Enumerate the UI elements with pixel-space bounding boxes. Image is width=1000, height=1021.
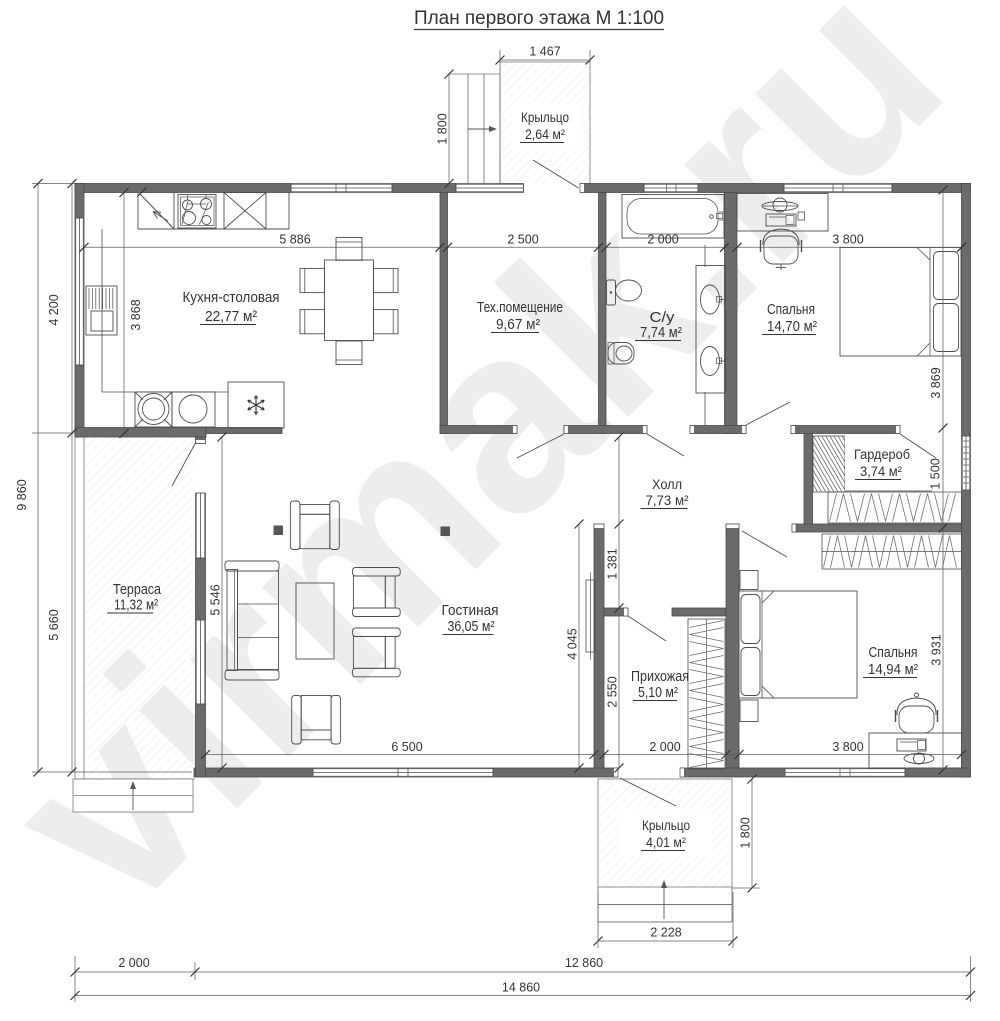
svg-text:Гардероб: Гардероб	[854, 447, 910, 462]
svg-text:Холл: Холл	[652, 476, 682, 492]
svg-text:4 045: 4 045	[566, 628, 580, 659]
svg-text:Спальня: Спальня	[869, 645, 918, 661]
svg-text:14 860: 14 860	[502, 981, 540, 995]
svg-text:4,01 м²: 4,01 м²	[646, 834, 686, 850]
svg-text:3,74 м²: 3,74 м²	[860, 464, 902, 479]
svg-text:14,94 м²: 14,94 м²	[868, 662, 918, 678]
svg-text:14,70 м²: 14,70 м²	[767, 319, 817, 335]
svg-text:Кухня-столовая: Кухня-столовая	[183, 289, 280, 306]
svg-text:2 000: 2 000	[647, 233, 678, 247]
svg-text:3 931: 3 931	[930, 634, 944, 665]
svg-text:7,73 м²: 7,73 м²	[646, 492, 689, 508]
svg-text:2 550: 2 550	[606, 676, 620, 707]
svg-text:1 467: 1 467	[529, 45, 560, 59]
svg-text:22,77 м²: 22,77 м²	[205, 308, 257, 325]
svg-text:5 546: 5 546	[209, 584, 223, 615]
svg-text:5 660: 5 660	[47, 609, 61, 640]
svg-text:Спальня: Спальня	[767, 302, 815, 318]
svg-text:Прихожая: Прихожая	[631, 669, 689, 685]
svg-text:2,64 м²: 2,64 м²	[525, 126, 565, 142]
svg-text:Гостиная: Гостиная	[442, 603, 499, 619]
svg-text:5,10 м²: 5,10 м²	[638, 685, 678, 701]
svg-text:1 800: 1 800	[739, 817, 753, 848]
svg-text:2 000: 2 000	[118, 956, 149, 970]
svg-text:12 860: 12 860	[565, 956, 603, 970]
svg-text:Крыльцо: Крыльцо	[642, 817, 690, 833]
svg-text:5 886: 5 886	[279, 233, 310, 247]
svg-text:3 869: 3 869	[929, 367, 943, 398]
svg-text:План первого этажа М 1:100: План первого этажа М 1:100	[414, 7, 664, 29]
svg-text:С/у: С/у	[650, 310, 676, 326]
svg-text:1 381: 1 381	[606, 548, 620, 579]
svg-text:3 800: 3 800	[832, 233, 863, 247]
svg-text:3 868: 3 868	[129, 299, 143, 330]
svg-text:2 228: 2 228	[650, 926, 681, 940]
svg-text:Тех.помещение: Тех.помещение	[477, 300, 563, 316]
svg-text:36,05 м²: 36,05 м²	[448, 619, 495, 635]
svg-text:2 500: 2 500	[507, 233, 538, 247]
svg-text:Терраса: Терраса	[113, 581, 162, 598]
svg-text:9,67 м²: 9,67 м²	[496, 317, 540, 333]
svg-text:3 800: 3 800	[832, 740, 863, 754]
svg-text:11,32 м²: 11,32 м²	[114, 597, 158, 614]
svg-text:7,74 м²: 7,74 м²	[640, 325, 682, 341]
svg-text:2 000: 2 000	[649, 740, 680, 754]
svg-text:1 800: 1 800	[436, 113, 450, 144]
svg-text:Крыльцо: Крыльцо	[521, 109, 569, 125]
svg-text:4 200: 4 200	[47, 294, 61, 325]
svg-text:9 860: 9 860	[15, 479, 29, 510]
svg-text:1 500: 1 500	[929, 458, 943, 489]
svg-text:6 500: 6 500	[391, 740, 422, 754]
